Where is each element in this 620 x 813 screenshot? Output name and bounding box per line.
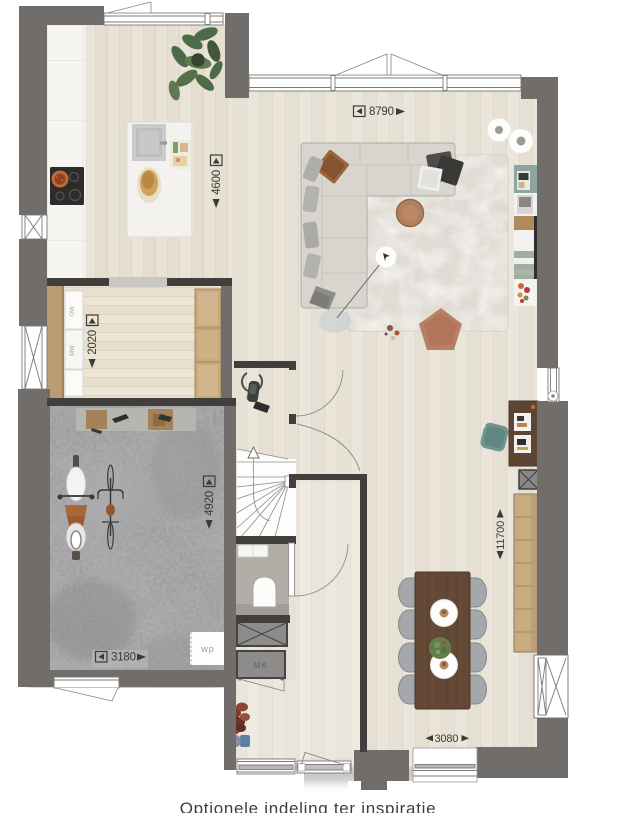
svg-text:3180: 3180 xyxy=(111,652,136,664)
svg-text:wp: wp xyxy=(200,644,215,654)
svg-text:4920: 4920 xyxy=(204,491,216,516)
svg-text:MK: MK xyxy=(254,661,269,670)
svg-text:4600: 4600 xyxy=(211,170,223,195)
svg-text:3080: 3080 xyxy=(435,733,459,745)
svg-text:Optionele indeling ter inspira: Optionele indeling ter inspiratie xyxy=(180,799,437,813)
svg-text:8790: 8790 xyxy=(369,106,394,118)
svg-text:11700: 11700 xyxy=(495,521,507,550)
svg-text:OW: OW xyxy=(70,306,76,317)
svg-text:2020: 2020 xyxy=(87,330,99,355)
svg-text:MW: MW xyxy=(70,345,76,356)
